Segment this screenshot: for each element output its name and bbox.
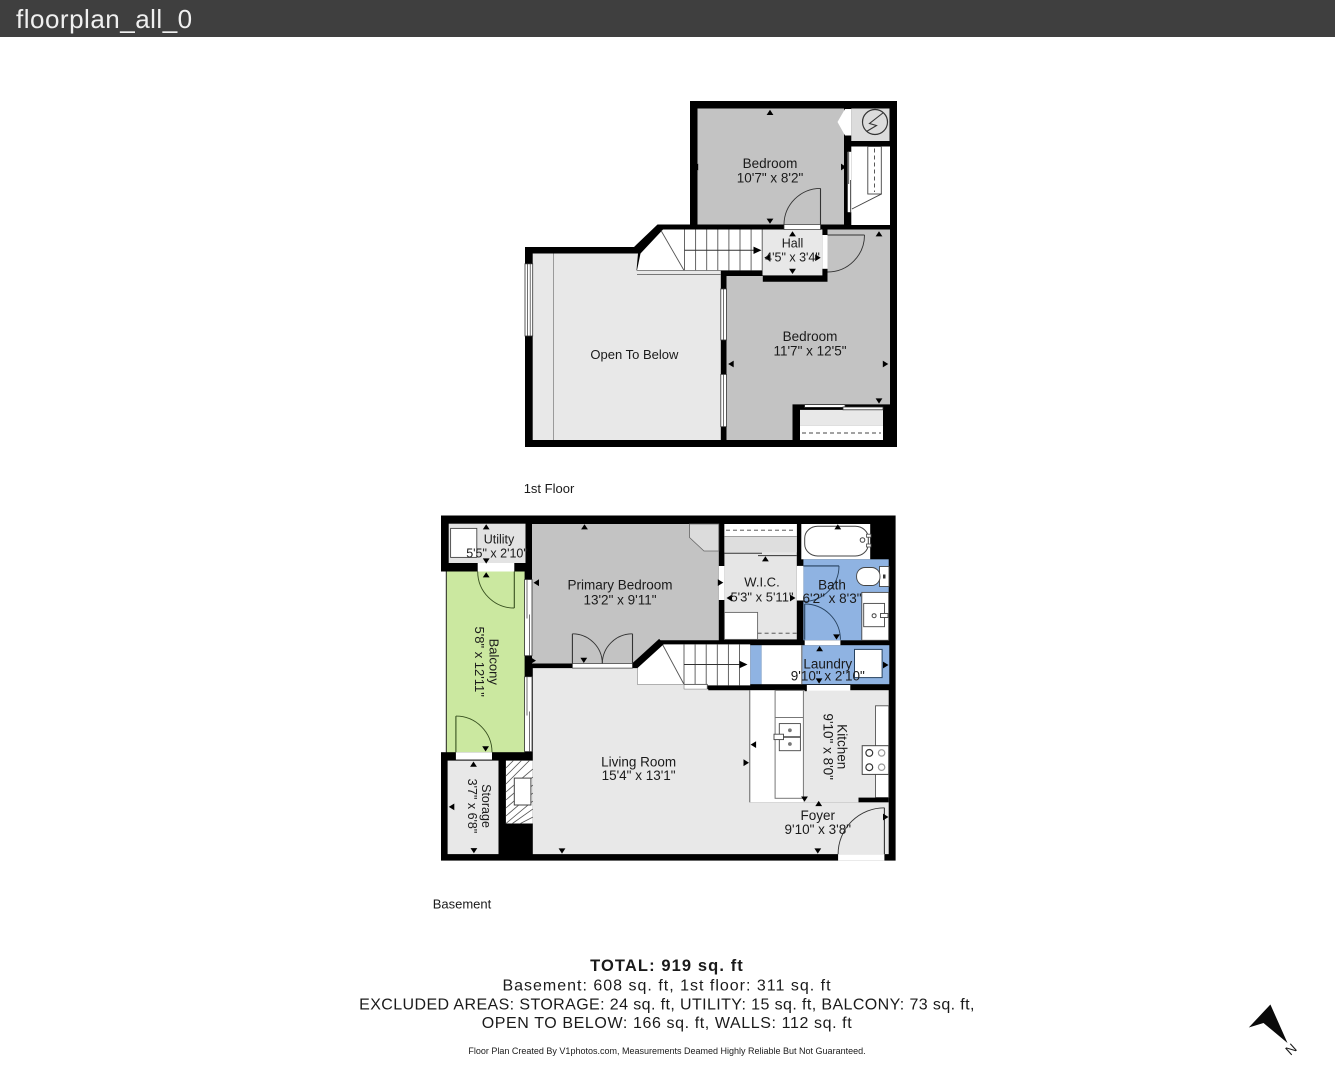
svg-text:5'5" x 2'10": 5'5" x 2'10" [466,547,528,561]
svg-text:4'5" x 3'4": 4'5" x 3'4" [765,251,820,265]
svg-text:Bedroom: Bedroom [783,329,838,344]
svg-text:Basement: Basement [433,897,492,912]
svg-text:N: N [1282,1041,1299,1059]
svg-text:Open To Below: Open To Below [590,347,679,362]
svg-text:9'10" x 3'8": 9'10" x 3'8" [785,822,852,837]
svg-text:6'2" x 8'3": 6'2" x 8'3" [802,591,861,606]
svg-text:Utility: Utility [484,533,515,547]
svg-text:Balcony: Balcony [487,639,502,686]
svg-text:Basement: 608 sq. ft, 1st floo: Basement: 608 sq. ft, 1st floor: 311 sq.… [502,978,831,995]
svg-text:Foyer: Foyer [801,808,836,823]
svg-text:15'4" x 13'1": 15'4" x 13'1" [602,768,676,783]
svg-text:Primary Bedroom: Primary Bedroom [567,578,672,593]
svg-text:9'10" x 2'10": 9'10" x 2'10" [791,669,865,684]
svg-text:10'7" x 8'2": 10'7" x 8'2" [737,171,804,186]
svg-text:W.I.C.: W.I.C. [744,575,779,590]
svg-text:5'3" x 5'11": 5'3" x 5'11" [730,590,793,605]
svg-text:13'2" x 9'11": 13'2" x 9'11" [583,593,656,608]
svg-text:Bedroom: Bedroom [743,156,798,171]
svg-text:5'8" x 12'11": 5'8" x 12'11" [472,627,487,698]
svg-text:11'7" x 12'5": 11'7" x 12'5" [773,344,846,359]
svg-text:TOTAL: 919 sq. ft: TOTAL: 919 sq. ft [590,957,744,975]
svg-text:Storage: Storage [479,784,493,828]
svg-text:1st Floor: 1st Floor [524,481,575,496]
svg-text:OPEN TO BELOW: 166 sq. ft, WAL: OPEN TO BELOW: 166 sq. ft, WALLS: 112 sq… [482,1015,853,1032]
svg-text:3'7" x 6'8": 3'7" x 6'8" [465,779,479,834]
svg-text:Floor Plan Created By V1photos: Floor Plan Created By V1photos.com, Meas… [468,1046,865,1056]
svg-text:Hall: Hall [782,237,804,251]
svg-text:EXCLUDED AREAS: STORAGE: 24 sq: EXCLUDED AREAS: STORAGE: 24 sq. ft, UTIL… [359,997,975,1014]
svg-text:9'10" x 8'0": 9'10" x 8'0" [821,713,836,780]
svg-text:Kitchen: Kitchen [834,724,849,769]
